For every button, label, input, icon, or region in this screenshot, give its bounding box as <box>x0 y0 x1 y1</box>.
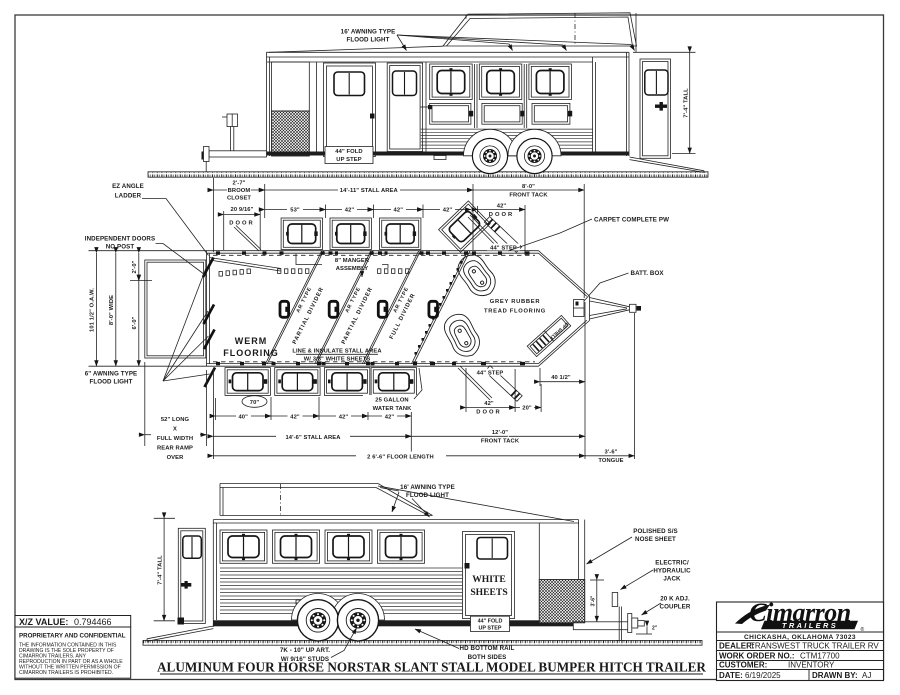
svg-text:8'-0" WIDE: 8'-0" WIDE <box>109 295 115 325</box>
svg-text:CHICKASHA, OKLAHOMA 73023: CHICKASHA, OKLAHOMA 73023 <box>744 634 856 641</box>
svg-text:BATT. BOX: BATT. BOX <box>631 270 665 277</box>
svg-text:42": 42" <box>345 208 355 214</box>
svg-text:12'-0": 12'-0" <box>492 430 508 436</box>
svg-text:52" LONG: 52" LONG <box>161 417 190 423</box>
svg-text:FRONT TACK: FRONT TACK <box>509 193 548 199</box>
svg-text:POLISHED S/S: POLISHED S/S <box>633 528 678 535</box>
svg-text:WORK ORDER NO.:: WORK ORDER NO.: <box>719 651 795 660</box>
svg-text:14'-6" STALL AREA: 14'-6" STALL AREA <box>285 435 341 441</box>
svg-text:6" AWNING TYPE: 6" AWNING TYPE <box>85 371 138 378</box>
svg-text:COUPLER: COUPLER <box>660 604 691 611</box>
svg-text:TREAD FLOORING: TREAD FLOORING <box>484 309 546 315</box>
svg-text:TRAILERS: TRAILERS <box>782 621 838 630</box>
svg-text:2 6'-6" FLOOR LENGTH: 2 6'-6" FLOOR LENGTH <box>367 454 434 460</box>
svg-text:101 1/2" O.A.W.: 101 1/2" O.A.W. <box>90 288 96 332</box>
svg-text:ALUMINUM FOUR HORSE NORSTAR SL: ALUMINUM FOUR HORSE NORSTAR SLANT STALL … <box>157 660 706 675</box>
svg-text:WERM: WERM <box>235 336 268 346</box>
svg-text:DRAWN BY:: DRAWN BY: <box>812 671 858 680</box>
svg-text:ELECTRIC/: ELECTRIC/ <box>655 560 689 567</box>
svg-text:BROOM: BROOM <box>228 188 251 194</box>
svg-text:40 1/2": 40 1/2" <box>551 375 571 381</box>
svg-text:44" STEP: 44" STEP <box>490 245 517 251</box>
svg-text:GREY RUBBER: GREY RUBBER <box>490 299 541 305</box>
svg-text:CIMARRON TRAILERS IS PROHIBITE: CIMARRON TRAILERS IS PROHIBITED. <box>19 670 113 676</box>
svg-text:53": 53" <box>290 208 300 214</box>
svg-text:2'-7": 2'-7" <box>232 181 245 187</box>
svg-text:14'-11" STALL AREA: 14'-11" STALL AREA <box>340 188 399 194</box>
svg-text:TRANSWEST TRUCK TRAILER RV: TRANSWEST TRUCK TRAILER RV <box>750 641 879 650</box>
svg-text:UP STEP: UP STEP <box>336 157 361 163</box>
svg-text:7K - 10" UP ART.: 7K - 10" UP ART. <box>280 647 330 654</box>
svg-text:7'-4" TALL: 7'-4" TALL <box>158 555 164 585</box>
svg-text:DOOR: DOOR <box>476 410 501 416</box>
svg-text:WHITE: WHITE <box>472 574 506 585</box>
svg-text:40": 40" <box>238 414 248 420</box>
svg-text:HD BOTTOM RAIL: HD BOTTOM RAIL <box>460 645 515 652</box>
svg-text:44" FOLD: 44" FOLD <box>478 619 503 625</box>
svg-text:FULL WIDTH: FULL WIDTH <box>157 436 193 442</box>
svg-text:8'-0": 8'-0" <box>522 184 535 190</box>
svg-text:AJ: AJ <box>862 671 871 680</box>
svg-text:INVENTORY: INVENTORY <box>788 661 835 670</box>
svg-text:42": 42" <box>339 414 349 420</box>
svg-text:42": 42" <box>443 208 453 214</box>
svg-text:CARPET COMPLETE PW: CARPET COMPLETE PW <box>594 216 669 223</box>
svg-text:16' AWNING TYPE: 16' AWNING TYPE <box>341 29 396 36</box>
svg-text:X: X <box>173 427 177 433</box>
svg-text:2": 2" <box>652 626 658 632</box>
svg-text:NOSE SHEET: NOSE SHEET <box>635 536 676 543</box>
svg-text:JACK: JACK <box>663 576 681 583</box>
svg-text:OVER: OVER <box>167 455 185 461</box>
svg-text:FRONT TACK: FRONT TACK <box>481 438 520 444</box>
svg-text:44" STEP: 44" STEP <box>477 371 504 377</box>
svg-text:DATE:: DATE: <box>719 671 743 680</box>
svg-text:42": 42" <box>385 414 395 420</box>
svg-text:42": 42" <box>394 208 404 214</box>
svg-text:8" MANGER: 8" MANGER <box>335 258 370 264</box>
svg-text:NO POST: NO POST <box>106 244 135 251</box>
svg-text:FLOOD LIGHT: FLOOD LIGHT <box>89 379 132 386</box>
svg-text:REAR RAMP: REAR RAMP <box>157 446 193 452</box>
svg-text:3'-6": 3'-6" <box>604 449 617 455</box>
svg-text:3'-6": 3'-6" <box>591 595 597 606</box>
svg-text:LADDER: LADDER <box>115 193 142 200</box>
svg-text:FLOORING: FLOORING <box>223 348 279 358</box>
svg-text:CTM17700: CTM17700 <box>800 651 840 660</box>
svg-text:20 9/16": 20 9/16" <box>231 207 254 213</box>
svg-text:W/ 3/8" WHITE SHEETS: W/ 3/8" WHITE SHEETS <box>304 357 371 363</box>
svg-text:16' AWNING TYPE: 16' AWNING TYPE <box>400 484 455 491</box>
svg-text:FLOOD LIGHT: FLOOD LIGHT <box>346 37 389 44</box>
svg-text:44" FOLD: 44" FOLD <box>335 149 362 155</box>
svg-text:CLOSET: CLOSET <box>227 196 251 202</box>
svg-text:DOOR: DOOR <box>489 212 514 218</box>
svg-text:INDEPENDENT DOORS: INDEPENDENT DOORS <box>85 236 155 243</box>
svg-text:ASSEMBLY: ASSEMBLY <box>336 266 369 272</box>
svg-text:WATER TANK: WATER TANK <box>373 406 412 412</box>
svg-text:X/Z VALUE:: X/Z VALUE: <box>19 617 68 627</box>
svg-text:2'-0": 2'-0" <box>132 260 138 273</box>
svg-text:70": 70" <box>250 400 260 406</box>
svg-text:25 GALLON: 25 GALLON <box>375 398 408 404</box>
svg-text:EZ ANGLE: EZ ANGLE <box>112 183 144 190</box>
svg-text:42": 42" <box>484 401 494 407</box>
svg-text:PROPRIETARY AND CONFIDENTIAL: PROPRIETARY AND CONFIDENTIAL <box>19 633 126 640</box>
svg-text:LINE & INSULATE STALL AREA: LINE & INSULATE STALL AREA <box>292 349 382 355</box>
svg-text:20": 20" <box>522 406 532 412</box>
svg-text:7'-4" TALL: 7'-4" TALL <box>684 88 690 118</box>
svg-text:UP STEP: UP STEP <box>479 626 502 632</box>
svg-text:0.794466: 0.794466 <box>74 617 112 627</box>
svg-text:HYDRAULIC: HYDRAULIC <box>653 568 691 575</box>
svg-text:DOOR: DOOR <box>229 221 254 227</box>
svg-text:6'-0": 6'-0" <box>132 316 138 329</box>
svg-text:6/19/2025: 6/19/2025 <box>745 671 781 680</box>
svg-text:FLOOD LIGHT: FLOOD LIGHT <box>406 492 449 499</box>
svg-text:20 K ADJ.: 20 K ADJ. <box>660 596 690 603</box>
svg-text:SHEETS: SHEETS <box>470 587 507 598</box>
svg-text:CUSTOMER:: CUSTOMER: <box>719 661 767 670</box>
svg-text:42": 42" <box>290 414 300 420</box>
svg-text:TONGUE: TONGUE <box>598 458 623 464</box>
svg-text:42": 42" <box>497 204 507 210</box>
